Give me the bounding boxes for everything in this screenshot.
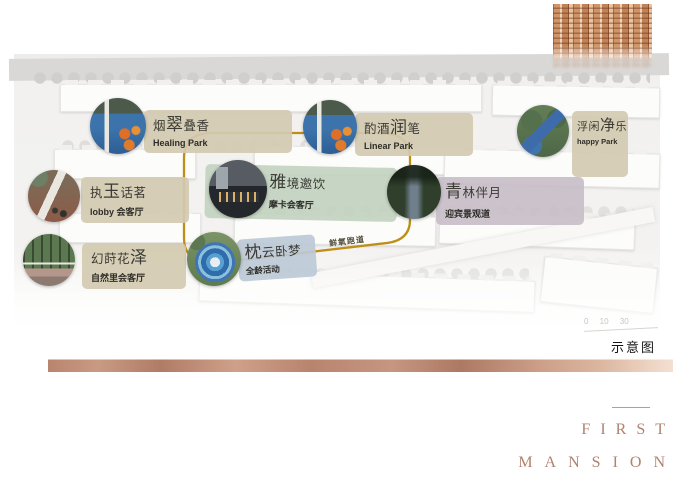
photo-lobby xyxy=(28,170,80,222)
photo-happy-park xyxy=(517,105,569,157)
copper-divider-bar xyxy=(48,359,673,372)
building-logo-reflection xyxy=(553,59,652,68)
label-box: 酌酒润笔 Linear Park xyxy=(355,113,473,156)
callout-title: 雅境邀饮 xyxy=(269,172,391,194)
callout-title: 幻莳花泽 xyxy=(91,248,177,268)
callout-subtitle: 摩卡会客厅 xyxy=(269,197,391,213)
label-box: 执玉话茗 lobby 会客厅 xyxy=(81,177,189,223)
label-box: 浮闲净乐 happy Park xyxy=(572,111,628,177)
photo-linear-park xyxy=(303,100,357,154)
schematic-note: 示意图 xyxy=(611,337,656,356)
callout-subtitle: 全龄活动 xyxy=(245,260,310,276)
brand-name-line2: MANSION xyxy=(518,454,673,472)
label-box: 枕云卧梦 全龄活动 xyxy=(237,234,318,281)
callout-title: 枕云卧梦 xyxy=(244,239,309,263)
callout-subtitle: Linear Park xyxy=(364,141,464,151)
photo-moka-club xyxy=(209,160,267,218)
scale-bar-text: 0 10 30 xyxy=(584,317,629,326)
callout-subtitle: happy Park xyxy=(577,137,623,146)
callout-title: 执玉话茗 xyxy=(90,182,180,202)
label-box: 幻莳花泽 自然里会客厅 xyxy=(82,243,186,289)
callout-subtitle: lobby 会客厅 xyxy=(90,205,180,218)
photo-welcome-avenue xyxy=(387,165,441,219)
photo-healing-park xyxy=(90,98,146,154)
photo-nature-club xyxy=(23,234,75,286)
building-logo-icon xyxy=(553,4,652,59)
callout-subtitle: 迎宾景观道 xyxy=(445,207,575,220)
callout-title: 酌酒润笔 xyxy=(364,118,464,138)
page: 鲜氧跑道 烟翠叠香 Healing Park 酌酒润笔 Linear Park … xyxy=(0,0,673,494)
photo-all-age-activity xyxy=(187,232,241,286)
brand-name-line1: FIRST xyxy=(581,421,673,439)
callout-title: 烟翠叠香 xyxy=(153,115,283,135)
callout-title: 青林伴月 xyxy=(445,182,575,202)
callout-subtitle: Healing Park xyxy=(153,138,283,148)
brand-rule-line xyxy=(612,407,650,408)
label-box: 烟翠叠香 Healing Park xyxy=(144,110,292,153)
label-box: 青林伴月 迎宾景观道 xyxy=(436,177,584,225)
callout-subtitle: 自然里会客厅 xyxy=(91,271,177,284)
callout-title: 浮闲净乐 xyxy=(577,117,623,134)
